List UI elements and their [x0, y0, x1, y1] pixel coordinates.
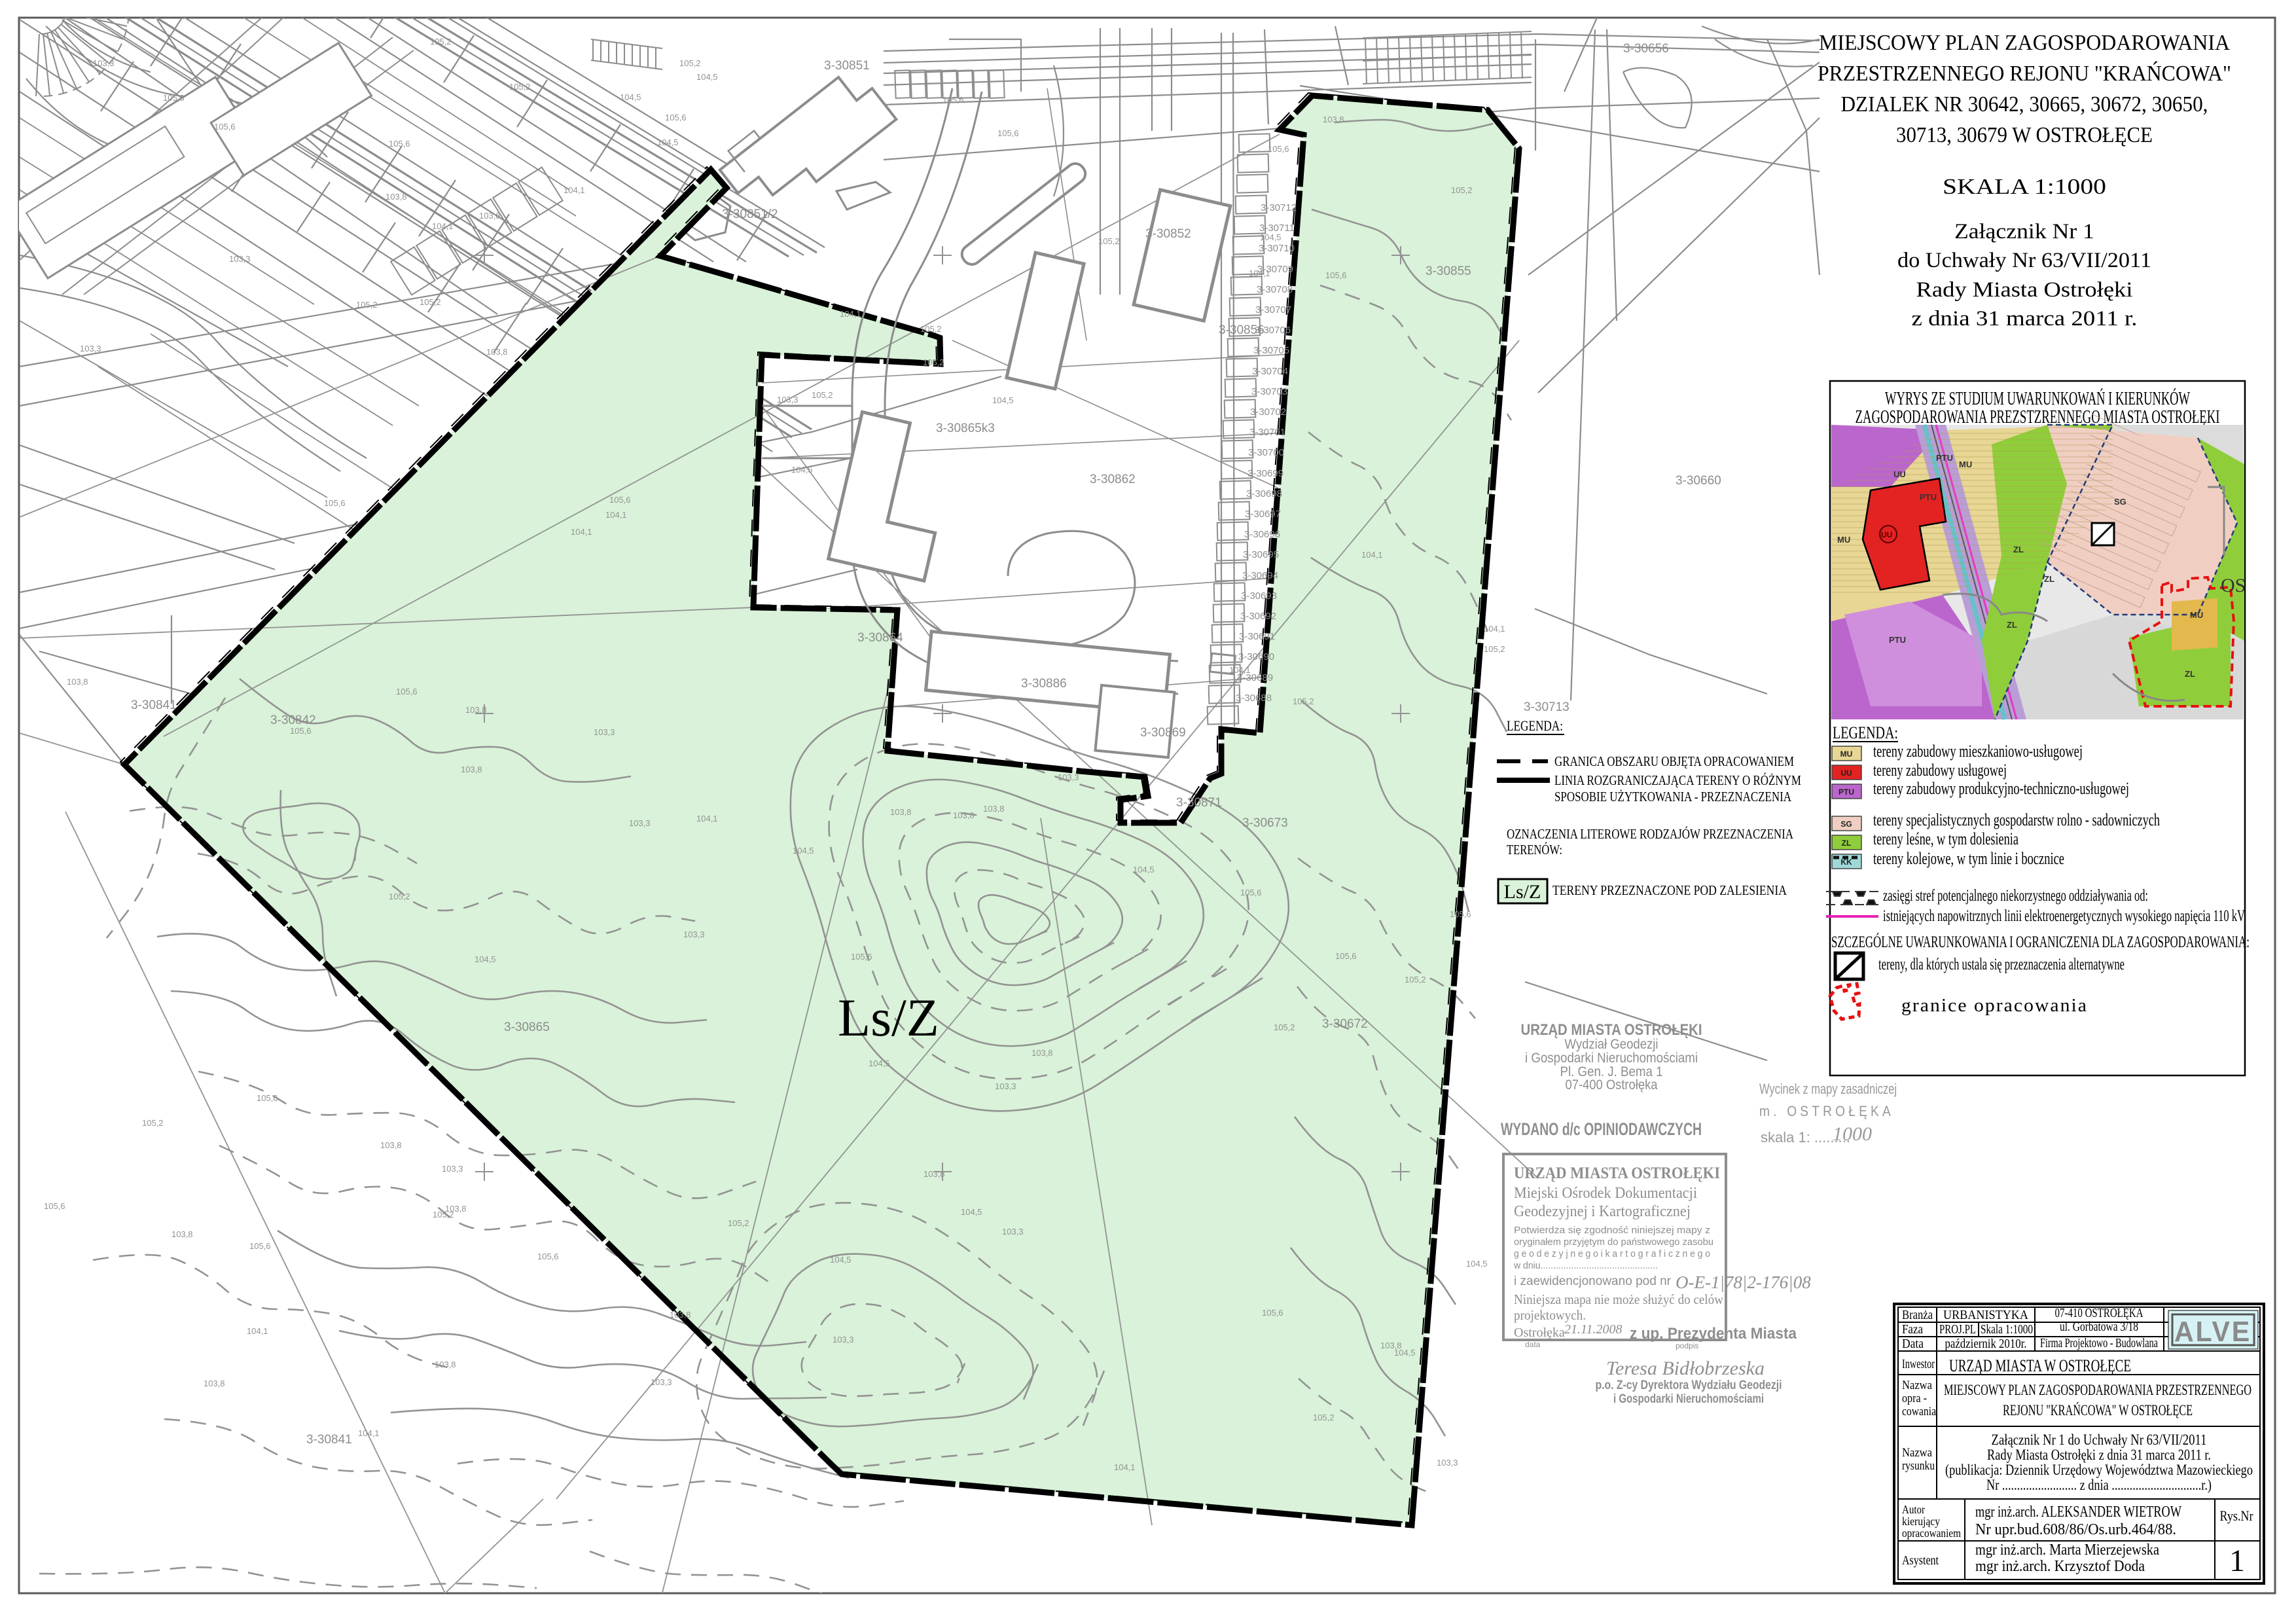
svg-text:105,6: 105,6 — [1268, 144, 1289, 154]
svg-text:104,5: 104,5 — [793, 846, 814, 856]
svg-text:105,2: 105,2 — [812, 390, 833, 400]
svg-text:Rys.Nr: Rys.Nr — [2220, 1507, 2254, 1524]
svg-text:Ls/Z: Ls/Z — [1504, 881, 1541, 903]
svg-text:ALVE: ALVE — [2174, 1316, 2251, 1348]
svg-text:Inwestor: Inwestor — [1902, 1357, 1935, 1371]
svg-text:mgr inż.arch. Marta Mierzejews: mgr inż.arch. Marta Mierzejewska — [1975, 1542, 2159, 1559]
svg-text:3-30886: 3-30886 — [1021, 677, 1067, 691]
svg-text:LEGENDA:: LEGENDA: — [1833, 723, 1898, 742]
svg-text:Załącznik Nr 1 do Uchwały Nr 6: Załącznik Nr 1 do Uchwały Nr 63/VII/2011 — [1992, 1432, 2207, 1448]
svg-text:z up. Prezydenta Miasta: z up. Prezydenta Miasta — [1630, 1325, 1797, 1343]
svg-text:105,2: 105,2 — [679, 58, 701, 68]
svg-text:3-30700: 3-30700 — [1248, 447, 1284, 458]
svg-text:105,6: 105,6 — [324, 498, 346, 508]
svg-text:opra -: opra - — [1902, 1392, 1927, 1405]
svg-text:3-30707: 3-30707 — [1255, 304, 1291, 316]
svg-text:tereny specjalistycznych gospo: tereny specjalistycznych gospodarstw rol… — [1873, 810, 2160, 829]
svg-text:103,3: 103,3 — [683, 929, 705, 939]
svg-text:103,3: 103,3 — [594, 727, 615, 737]
svg-text:103,8: 103,8 — [461, 765, 482, 774]
svg-text:UU: UU — [1840, 768, 1852, 778]
svg-text:3-30841: 3-30841 — [306, 1433, 352, 1447]
svg-text:103,3: 103,3 — [629, 818, 651, 828]
svg-text:103,3: 103,3 — [80, 344, 101, 353]
svg-text:3-30688: 3-30688 — [1236, 693, 1272, 704]
svg-text:103,8: 103,8 — [890, 807, 912, 817]
svg-text:103,8: 103,8 — [953, 810, 975, 820]
svg-text:Firma Projektowo - Budowlana: Firma Projektowo - Budowlana — [2040, 1336, 2158, 1350]
svg-text:Rady Miasta Ostrołęki z dnia 3: Rady Miasta Ostrołęki z dnia 31 marca 20… — [1987, 1447, 2211, 1463]
svg-text:3-30869: 3-30869 — [1140, 726, 1186, 740]
svg-text:tereny, dla których ustala się: tereny, dla których ustala się przeznacz… — [1878, 956, 2125, 973]
svg-text:104,1: 104,1 — [1229, 665, 1251, 675]
svg-text:MU: MU — [2190, 610, 2203, 620]
svg-text:3-30703: 3-30703 — [1251, 386, 1287, 397]
svg-text:Załącznik Nr 1: Załącznik Nr 1 — [1954, 220, 2094, 244]
svg-text:103,3: 103,3 — [995, 1081, 1016, 1091]
svg-text:w dniu........................: w dniu..................................… — [1513, 1260, 1658, 1271]
svg-text:103,8: 103,8 — [1031, 1048, 1053, 1058]
svg-text:październik 2010r.: październik 2010r. — [1945, 1337, 2027, 1351]
svg-text:Wycinek z mapy zasadniczej: Wycinek z mapy zasadniczej — [1759, 1081, 1897, 1097]
svg-text:105,6: 105,6 — [942, 95, 964, 105]
svg-text:mgr inż.arch. ALEKSANDER WIETR: mgr inż.arch. ALEKSANDER WIETROW — [1975, 1504, 2181, 1521]
svg-text:3-30696: 3-30696 — [1244, 529, 1280, 540]
svg-text:105,6: 105,6 — [997, 128, 1019, 138]
svg-text:Autor: Autor — [1902, 1503, 1925, 1516]
svg-text:PTU: PTU — [1839, 787, 1854, 797]
svg-text:granice opracowania: granice opracowania — [1901, 995, 2088, 1016]
svg-text:105,2: 105,2 — [356, 300, 378, 310]
svg-text:ZL: ZL — [2185, 669, 2195, 679]
svg-text:3-30713: 3-30713 — [1524, 700, 1570, 714]
svg-text:SPOSOBIE UŻYTKOWANIA - PRZEZNA: SPOSOBIE UŻYTKOWANIA - PRZEZNACZENIA — [1554, 789, 1792, 804]
svg-text:3-30699: 3-30699 — [1247, 468, 1283, 479]
svg-text:104,1: 104,1 — [571, 527, 592, 537]
svg-text:Geodezyjnej i Kartograficznej: Geodezyjnej i Kartograficznej — [1514, 1203, 1691, 1220]
svg-text:103,8: 103,8 — [983, 804, 1005, 814]
svg-text:103,8: 103,8 — [670, 1310, 691, 1320]
svg-text:data: data — [1525, 1340, 1541, 1349]
svg-text:3-30691: 3-30691 — [1239, 631, 1275, 642]
svg-text:105,2: 105,2 — [923, 357, 944, 367]
svg-text:104,5: 104,5 — [1260, 232, 1282, 242]
svg-text:104,5: 104,5 — [869, 1058, 890, 1068]
svg-text:tereny leśne, w tym dolesienia: tereny leśne, w tym dolesienia — [1873, 829, 2018, 848]
svg-text:105,6: 105,6 — [1325, 270, 1347, 280]
svg-text:3-30864: 3-30864 — [857, 631, 903, 645]
svg-text:z dnia 31 marca 2011 r.: z dnia 31 marca 2011 r. — [1912, 307, 2138, 331]
svg-text:103,8: 103,8 — [479, 211, 501, 221]
svg-text:PTU: PTU — [1889, 635, 1906, 645]
svg-text:105,6: 105,6 — [396, 687, 418, 696]
svg-text:105,2: 105,2 — [728, 1218, 749, 1228]
svg-text:tereny kolejowe, w tym linie i: tereny kolejowe, w tym linie i bocznice — [1873, 849, 2064, 868]
svg-text:ZL: ZL — [2007, 620, 2017, 630]
svg-text:105,6: 105,6 — [257, 1093, 278, 1103]
svg-text:3-30862: 3-30862 — [1090, 473, 1136, 486]
svg-text:103,8: 103,8 — [486, 347, 508, 357]
svg-text:103,3: 103,3 — [1058, 772, 1079, 782]
svg-text:Nazwa: Nazwa — [1902, 1446, 1932, 1460]
svg-text:103,8: 103,8 — [1323, 115, 1344, 124]
svg-text:MIEJSCOWY PLAN ZAGOSPODAROWANI: MIEJSCOWY PLAN ZAGOSPODAROWANIA PRZESTRZ… — [1944, 1382, 2251, 1398]
svg-text:103,8: 103,8 — [435, 1360, 456, 1369]
svg-text:1: 1 — [2229, 1543, 2245, 1578]
svg-text:SKALA 1:1000: SKALA 1:1000 — [1943, 175, 2106, 199]
svg-text:SZCZEGÓLNE UWARUNKOWANIA I OGR: SZCZEGÓLNE UWARUNKOWANIA I OGRANICZENIA … — [1831, 933, 2250, 951]
svg-text:(publikacja: Dziennik Urzędowy: (publikacja: Dziennik Urzędowy Województ… — [1945, 1462, 2253, 1478]
svg-text:URBANISTYKA: URBANISTYKA — [1943, 1308, 2029, 1322]
svg-text:105,2: 105,2 — [920, 324, 942, 334]
svg-text:cowania: cowania — [1902, 1405, 1936, 1418]
svg-text:SG: SG — [1840, 820, 1852, 829]
svg-text:Skala 1:1000: Skala 1:1000 — [1981, 1322, 2033, 1337]
svg-text:3-30851/2: 3-30851/2 — [722, 208, 778, 221]
svg-text:104,1: 104,1 — [1484, 624, 1505, 634]
svg-text:3-30695: 3-30695 — [1243, 549, 1279, 560]
svg-text:ZL: ZL — [2013, 545, 2024, 554]
svg-text:g e o d e z y j n e g o i k: g e o d e z y j n e g o i k a r t o g r … — [1514, 1248, 1710, 1259]
svg-text:105,6: 105,6 — [214, 122, 236, 132]
svg-text:MIEJSCOWY PLAN ZAGOSPODAROWANI: MIEJSCOWY PLAN ZAGOSPODAROWANIA — [1819, 31, 2230, 55]
svg-text:ZL: ZL — [1842, 839, 1852, 848]
svg-text:104,5: 104,5 — [1466, 1259, 1488, 1269]
svg-text:tereny zabudowy usługowej: tereny zabudowy usługowej — [1873, 761, 2007, 780]
svg-text:mgr inż.arch. Krzysztof Doda: mgr inż.arch. Krzysztof Doda — [1975, 1558, 2145, 1575]
svg-text:DZIALEK NR 30642, 30665, 30672: DZIALEK NR 30642, 30665, 30672, 30650, — [1841, 92, 2208, 117]
svg-text:3-30697: 3-30697 — [1245, 509, 1281, 520]
svg-text:104,5: 104,5 — [791, 465, 813, 475]
svg-text:Rady Miasta Ostrołęki: Rady Miasta Ostrołęki — [1916, 278, 2133, 302]
svg-text:WYRYS ZE STUDIUM UWARUNKOWAŃ I: WYRYS ZE STUDIUM UWARUNKOWAŃ I KIERUNKÓW — [1885, 389, 2190, 409]
svg-text:Niniejsza mapa nie może służyć: Niniejsza mapa nie może służyć do celów — [1514, 1291, 1724, 1307]
svg-text:103,8: 103,8 — [204, 1379, 225, 1388]
svg-text:oryginałem przyjętym do państw: oryginałem przyjętym do państwowego zaso… — [1514, 1236, 1713, 1248]
svg-text:URZĄD MIASTA OSTROŁĘKI: URZĄD MIASTA OSTROŁĘKI — [1514, 1164, 1720, 1182]
svg-text:Ls/Z: Ls/Z — [838, 988, 939, 1047]
svg-text:104,5: 104,5 — [475, 954, 496, 964]
svg-text:Data: Data — [1902, 1337, 1924, 1351]
svg-text:104,5: 104,5 — [830, 1255, 852, 1265]
svg-text:do Uchwały Nr 63/VII/2011: do Uchwały Nr 63/VII/2011 — [1897, 249, 2151, 272]
svg-text:projektowych.: projektowych. — [1514, 1307, 1586, 1323]
svg-text:103,3: 103,3 — [833, 1335, 854, 1344]
svg-text:SG: SG — [2114, 497, 2126, 507]
svg-text:i zaewidencjonowano pod nr: i zaewidencjonowano pod nr — [1514, 1274, 1672, 1288]
svg-text:105,2: 105,2 — [1293, 696, 1314, 706]
svg-text:104,1: 104,1 — [1361, 550, 1383, 560]
svg-text:104,1: 104,1 — [432, 221, 454, 231]
svg-text:104,1: 104,1 — [605, 510, 627, 520]
svg-text:105,2: 105,2 — [420, 297, 441, 307]
svg-text:GRANICA OBSZARU OBJĘTA OPRACOW: GRANICA OBSZARU OBJĘTA OPRACOWANIEM — [1554, 753, 1794, 769]
svg-text:3-30656: 3-30656 — [1623, 42, 1669, 56]
svg-text:rysunku: rysunku — [1902, 1459, 1935, 1473]
svg-text:URZĄD MIASTA OSTROŁĘKI: URZĄD MIASTA OSTROŁĘKI — [1521, 1021, 1702, 1039]
svg-text:105,2: 105,2 — [1313, 1413, 1335, 1422]
svg-text:3-30672: 3-30672 — [1322, 1017, 1368, 1031]
svg-text:podpis: podpis — [1676, 1341, 1698, 1350]
svg-text:opracowaniem: opracowaniem — [1902, 1526, 1961, 1540]
svg-text:ZAGOSPODAROWANIA PREZSTZRENNEG: ZAGOSPODAROWANIA PREZSTZRENNEGO MIASTA O… — [1856, 407, 2220, 427]
svg-text:104,1: 104,1 — [840, 309, 861, 319]
svg-text:103,3: 103,3 — [651, 1377, 672, 1387]
svg-text:3-30852: 3-30852 — [1145, 227, 1191, 241]
svg-text:3-30673: 3-30673 — [1242, 816, 1288, 830]
svg-text:104,1: 104,1 — [564, 185, 585, 195]
svg-text:3-30871: 3-30871 — [1176, 796, 1222, 810]
svg-text:105,6: 105,6 — [44, 1201, 65, 1211]
svg-text:3-30855: 3-30855 — [1426, 264, 1471, 278]
svg-text:103,8: 103,8 — [380, 1140, 402, 1150]
svg-text:103,3: 103,3 — [1437, 1458, 1458, 1468]
svg-text:105,2: 105,2 — [1098, 236, 1120, 246]
svg-text:105,6: 105,6 — [537, 1252, 559, 1261]
svg-text:3-30705: 3-30705 — [1253, 345, 1289, 356]
svg-text:105,2: 105,2 — [1274, 1022, 1295, 1032]
svg-text:103,8: 103,8 — [171, 1229, 193, 1239]
svg-text:Ostrołęka: Ostrołęka — [1514, 1326, 1565, 1340]
svg-text:105,2: 105,2 — [430, 37, 452, 46]
svg-text:3-30694: 3-30694 — [1242, 570, 1278, 581]
svg-text:WYDANO d/c OPINIODAWCZYCH: WYDANO d/c OPINIODAWCZYCH — [1501, 1119, 1702, 1139]
svg-text:3-30704: 3-30704 — [1252, 366, 1288, 377]
svg-text:104,5: 104,5 — [657, 137, 679, 147]
svg-text:105,6: 105,6 — [1262, 1308, 1283, 1318]
svg-text:105,2: 105,2 — [1451, 185, 1473, 195]
svg-text:MU: MU — [1959, 460, 1972, 469]
svg-text:103,3: 103,3 — [229, 254, 251, 264]
svg-text:105,2: 105,2 — [1405, 975, 1426, 984]
svg-text:104,1: 104,1 — [1114, 1462, 1136, 1472]
svg-text:3-30841: 3-30841 — [131, 698, 177, 712]
svg-text:LINIA ROZGRANICZAJĄCA TERENY O: LINIA ROZGRANICZAJĄCA TERENY O RÓŻNYM — [1554, 772, 1801, 788]
svg-text:MU: MU — [1837, 535, 1850, 545]
svg-text:103,8: 103,8 — [386, 192, 407, 202]
svg-text:OZNACZENIA LITEROWE RODZAJÓW P: OZNACZENIA LITEROWE RODZAJÓW PRZEZNACZEN… — [1507, 826, 1794, 842]
svg-text:Teresa Bidłobrzeska: Teresa Bidłobrzeska — [1606, 1358, 1765, 1379]
svg-text:105,2: 105,2 — [142, 1118, 164, 1128]
svg-text:UU: UU — [1881, 530, 1892, 539]
svg-text:105,6: 105,6 — [163, 93, 185, 103]
svg-text:p.o. Z-cy Dyrektora Wydziału G: p.o. Z-cy Dyrektora Wydziału Geodezji — [1596, 1379, 1782, 1392]
svg-text:104,1: 104,1 — [1249, 268, 1270, 278]
svg-text:3-30865k3: 3-30865k3 — [936, 422, 995, 435]
svg-text:PTU: PTU — [1936, 453, 1953, 463]
svg-text:kierujący: kierujący — [1902, 1515, 1940, 1528]
svg-text:3-30851: 3-30851 — [824, 59, 870, 73]
svg-text:103,3: 103,3 — [777, 395, 798, 405]
svg-text:105,6: 105,6 — [609, 495, 631, 505]
svg-text:104,5: 104,5 — [696, 72, 718, 82]
svg-text:PRZESTRZENNEGO REJONU "KRAŃCOW: PRZESTRZENNEGO REJONU "KRAŃCOWA" — [1818, 62, 2231, 86]
svg-text:m. OSTROŁĘKA: m. OSTROŁĘKA — [1759, 1103, 1894, 1119]
svg-text:21.11.2008: 21.11.2008 — [1564, 1322, 1623, 1337]
svg-text:i Gospodarki Nieruchomościami: i Gospodarki Nieruchomościami — [1525, 1051, 1698, 1066]
svg-text:3-30708: 3-30708 — [1257, 284, 1293, 295]
svg-text:103,3: 103,3 — [1002, 1227, 1024, 1236]
svg-text:105,2: 105,2 — [389, 892, 410, 901]
svg-text:103,3: 103,3 — [93, 58, 115, 68]
svg-text:30713, 30679 W OSTROŁĘCE: 30713, 30679 W OSTROŁĘCE — [1896, 123, 2153, 147]
svg-text:Asystent: Asystent — [1902, 1553, 1939, 1568]
svg-text:3-30698: 3-30698 — [1246, 488, 1282, 499]
svg-text:3-30865: 3-30865 — [504, 1020, 550, 1034]
svg-text:104,1: 104,1 — [247, 1326, 268, 1336]
svg-text:O-E-1|78|2-176|08: O-E-1|78|2-176|08 — [1676, 1272, 1811, 1292]
svg-text:103,8: 103,8 — [465, 705, 487, 715]
svg-text:104,5: 104,5 — [1133, 865, 1155, 875]
svg-text:3-30693: 3-30693 — [1241, 590, 1277, 602]
svg-text:105,6: 105,6 — [1240, 888, 1262, 897]
svg-text:105,6: 105,6 — [290, 726, 312, 736]
svg-text:3-30701: 3-30701 — [1249, 427, 1285, 438]
svg-text:Branża: Branża — [1902, 1308, 1933, 1322]
svg-text:105,2: 105,2 — [509, 82, 531, 92]
svg-text:OS: OS — [2221, 575, 2246, 596]
svg-text:105,2: 105,2 — [433, 1210, 454, 1219]
svg-text:105,2: 105,2 — [1484, 644, 1505, 654]
svg-text:105,6: 105,6 — [665, 113, 687, 122]
svg-text:104,1: 104,1 — [358, 1428, 380, 1438]
svg-text:103,3: 103,3 — [442, 1164, 463, 1174]
svg-text:3-30690: 3-30690 — [1238, 651, 1274, 662]
svg-text:105,6: 105,6 — [249, 1241, 271, 1251]
svg-text:3-30856: 3-30856 — [1219, 323, 1265, 337]
svg-text:REJONU "KRAŃCOWA" W OSTROŁĘCE: REJONU "KRAŃCOWA" W OSTROŁĘCE — [2003, 1402, 2193, 1418]
svg-text:3-30712: 3-30712 — [1261, 202, 1297, 213]
svg-text:105,6: 105,6 — [1450, 909, 1471, 919]
svg-text:PTU: PTU — [1920, 492, 1937, 502]
svg-text:TERENÓW:: TERENÓW: — [1507, 842, 1562, 857]
svg-text:07-400 Ostrołęka: 07-400 Ostrołęka — [1566, 1077, 1658, 1092]
svg-text:MU: MU — [1840, 749, 1853, 759]
svg-text:103,8: 103,8 — [67, 677, 88, 687]
svg-text:zasięgi stref potencjalnego ni: zasięgi stref potencjalnego niekorzystne… — [1883, 887, 2148, 905]
svg-text:Wydział Geodezji: Wydział Geodezji — [1565, 1037, 1659, 1052]
svg-text:1000: 1000 — [1833, 1123, 1872, 1145]
svg-text:URZĄD MIASTA W OSTROŁĘCE: URZĄD MIASTA W OSTROŁĘCE — [1949, 1356, 2131, 1375]
svg-text:3-30842: 3-30842 — [270, 713, 316, 727]
svg-text:UU: UU — [1893, 469, 1906, 479]
svg-text:ul. Gorbatowa 3/18: ul. Gorbatowa 3/18 — [2060, 1320, 2138, 1334]
svg-text:3-30710: 3-30710 — [1259, 243, 1295, 254]
svg-text:Nr upr.bud.608/86/Os.urb.464/8: Nr upr.bud.608/86/Os.urb.464/88. — [1975, 1521, 2176, 1538]
svg-text:104,5: 104,5 — [1394, 1348, 1416, 1358]
svg-text:tereny zabudowy produkcyjno-te: tereny zabudowy produkcyjno-techniczno-u… — [1873, 779, 2129, 798]
svg-text:i Gospodarki Nieruchomościami: i Gospodarki Nieruchomościami — [1613, 1392, 1764, 1406]
svg-text:Faza: Faza — [1902, 1322, 1923, 1337]
svg-text:104,5: 104,5 — [961, 1207, 982, 1217]
svg-text:Nr ......................... z: Nr ......................... z dnia ....… — [1986, 1477, 2212, 1493]
svg-text:LEGENDA:: LEGENDA: — [1507, 717, 1563, 734]
svg-text:TERENY PRZEZNACZONE POD ZALESI: TERENY PRZEZNACZONE POD ZALESIENIA — [1552, 882, 1787, 898]
svg-text:ZL: ZL — [2044, 574, 2054, 584]
svg-text:07-410 OSTROŁĘKA: 07-410 OSTROŁĘKA — [2055, 1306, 2144, 1320]
svg-text:104,1: 104,1 — [696, 814, 718, 823]
svg-text:3-30660: 3-30660 — [1676, 474, 1721, 488]
svg-text:3-30692: 3-30692 — [1240, 611, 1276, 622]
svg-text:103,8: 103,8 — [924, 1169, 945, 1179]
svg-text:Nazwa: Nazwa — [1902, 1379, 1932, 1392]
svg-text:tereny zabudowy mieszkaniowo-u: tereny zabudowy mieszkaniowo-usługowej — [1873, 742, 2083, 761]
svg-text:Miejski Ośrodek Dokumentacji: Miejski Ośrodek Dokumentacji — [1514, 1185, 1697, 1202]
svg-text:istniejących napowitrznych lin: istniejących napowitrznych linii elektro… — [1883, 907, 2245, 925]
svg-text:104,5: 104,5 — [620, 92, 641, 102]
svg-text:105,6: 105,6 — [1335, 951, 1357, 961]
svg-text:105,6: 105,6 — [389, 139, 410, 149]
svg-text:104,5: 104,5 — [992, 395, 1014, 405]
svg-text:3-30702: 3-30702 — [1250, 406, 1286, 418]
svg-text:105,6: 105,6 — [851, 952, 872, 962]
svg-text:PROJ.PL: PROJ.PL — [1939, 1322, 1976, 1337]
svg-text:Potwierdza się zgodność niniej: Potwierdza się zgodność niniejszej mapy … — [1514, 1225, 1710, 1236]
